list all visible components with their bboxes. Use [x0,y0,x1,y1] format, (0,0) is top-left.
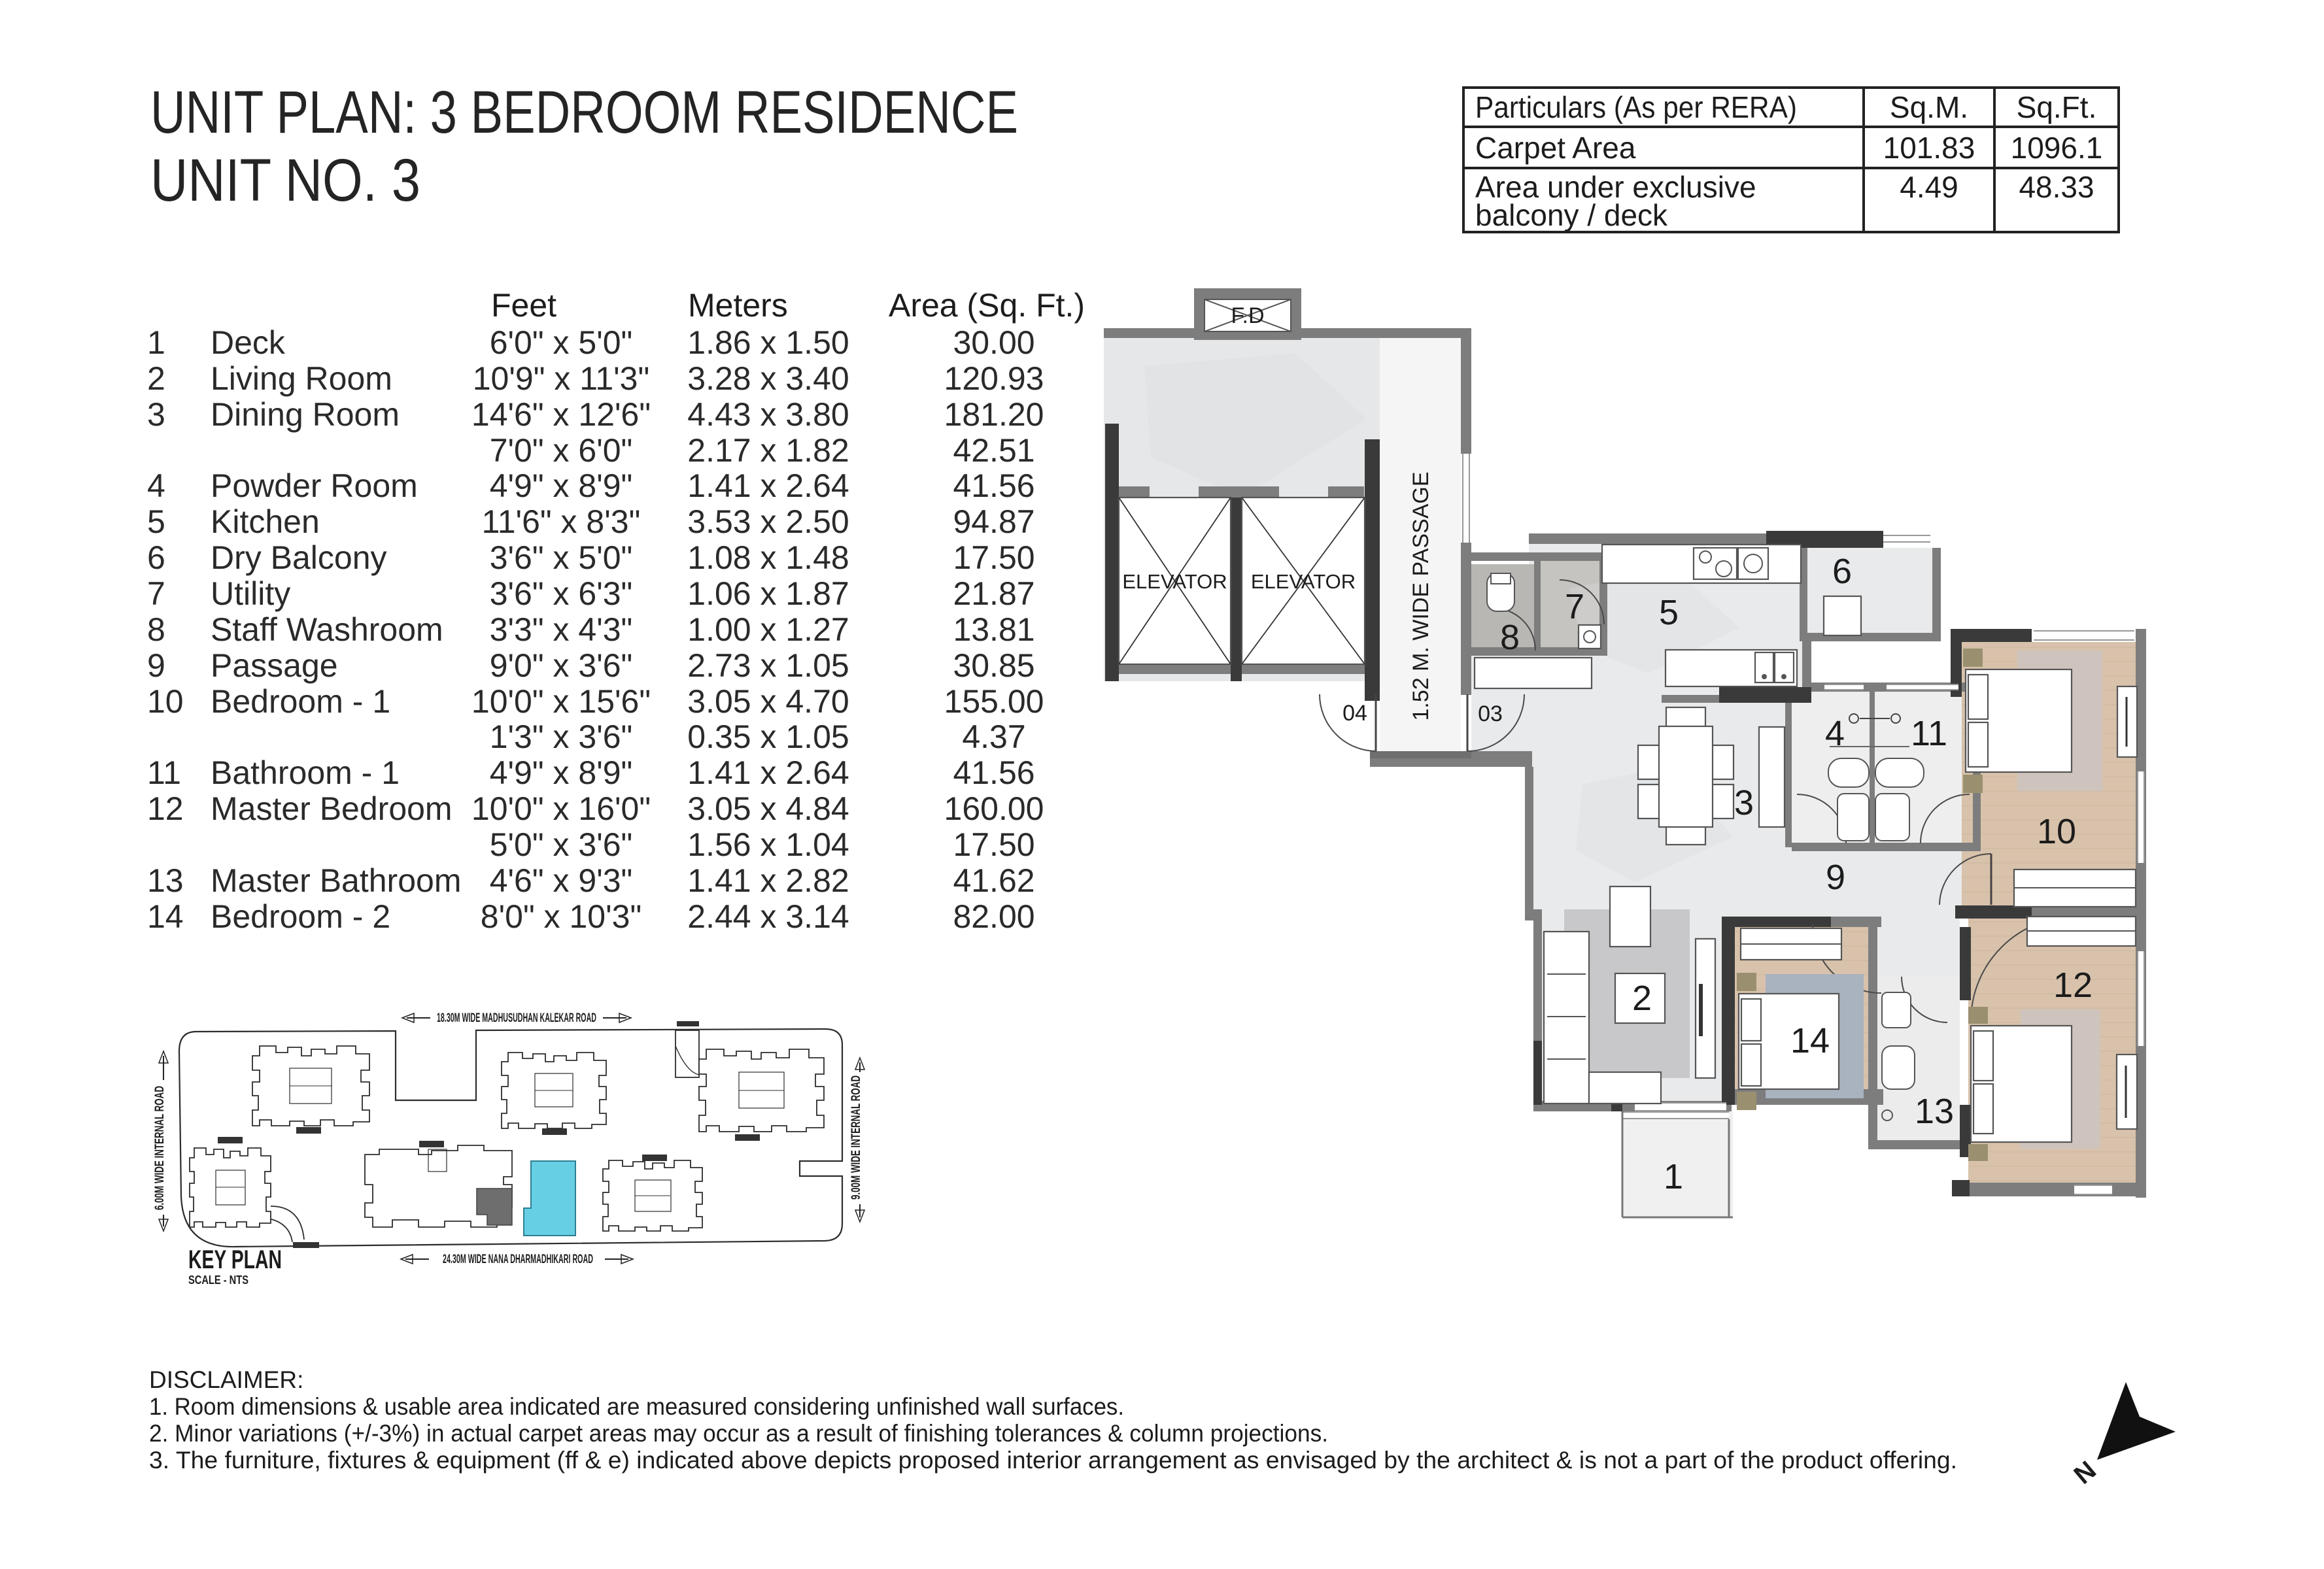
svg-text:1: 1 [147,324,165,361]
svg-text:11'6" x 8'3": 11'6" x 8'3" [482,503,641,540]
svg-text:Bedroom - 2: Bedroom - 2 [211,898,390,935]
svg-text:Particulars (As per RERA): Particulars (As per RERA) [1475,90,1797,124]
svg-text:120.93: 120.93 [944,360,1044,397]
svg-text:3.28 x 3.40: 3.28 x 3.40 [687,360,849,397]
svg-text:82.00: 82.00 [953,898,1034,935]
svg-text:UNIT NO. 3: UNIT NO. 3 [150,147,420,214]
svg-text:Utility: Utility [211,575,290,612]
svg-text:5: 5 [1659,593,1679,632]
svg-text:2: 2 [1632,979,1652,1018]
svg-text:21.87: 21.87 [953,575,1034,612]
svg-text:30.00: 30.00 [953,324,1034,361]
svg-text:Dry Balcony: Dry Balcony [211,539,387,576]
svg-text:1'3" x 3'6": 1'3" x 3'6" [490,718,633,755]
svg-text:Passage: Passage [211,647,338,684]
svg-text:41.56: 41.56 [953,754,1034,791]
svg-text:8: 8 [147,611,165,648]
svg-text:04: 04 [1342,701,1367,726]
svg-text:Living Room: Living Room [211,360,392,397]
svg-text:ELEVATOR: ELEVATOR [1251,570,1356,593]
svg-text:Area (Sq. Ft.): Area (Sq. Ft.) [889,287,1085,324]
svg-text:9'0" x 3'6": 9'0" x 3'6" [490,647,633,684]
svg-text:10: 10 [2037,812,2076,851]
svg-text:4: 4 [147,467,165,504]
svg-text:0.35 x 1.05: 0.35 x 1.05 [687,718,849,755]
svg-text:Kitchen: Kitchen [211,503,320,540]
svg-text:12: 12 [2053,966,2093,1005]
svg-text:Bathroom - 1: Bathroom - 1 [211,754,400,791]
svg-text:Bedroom - 1: Bedroom - 1 [211,683,390,720]
svg-text:3'3" x 4'3": 3'3" x 4'3" [490,611,633,648]
svg-text:2: 2 [147,360,165,397]
svg-text:3. The furniture, fixtures & e: 3. The furniture, fixtures & equipment (… [149,1447,1957,1474]
svg-text:Meters: Meters [688,287,788,324]
svg-text:4: 4 [1825,714,1845,753]
svg-text:13: 13 [1915,1092,1954,1131]
svg-text:Deck: Deck [211,324,286,361]
svg-text:balcony / deck: balcony / deck [1475,198,1668,232]
svg-text:155.00: 155.00 [944,683,1044,720]
svg-text:1.52 M. WIDE PASSAGE: 1.52 M. WIDE PASSAGE [1409,471,1433,720]
svg-text:4.49: 4.49 [1900,170,1958,204]
svg-text:94.87: 94.87 [953,503,1034,540]
svg-text:4.43 x 3.80: 4.43 x 3.80 [687,396,849,433]
svg-text:2.44 x 3.14: 2.44 x 3.14 [687,898,849,935]
svg-text:1.06 x 1.87: 1.06 x 1.87 [687,575,849,612]
svg-text:101.83: 101.83 [1883,131,1975,165]
svg-text:30.85: 30.85 [953,647,1034,684]
svg-text:13.81: 13.81 [953,611,1034,648]
svg-text:10'9" x 11'3": 10'9" x 11'3" [473,360,650,397]
svg-text:Feet: Feet [491,287,556,324]
svg-text:160.00: 160.00 [944,790,1044,827]
svg-text:Powder Room: Powder Room [211,467,418,504]
svg-text:3'6" x 6'3": 3'6" x 6'3" [490,575,633,612]
svg-text:7: 7 [1565,587,1584,626]
svg-text:2. Minor variations (+/-3%) in: 2. Minor variations (+/-3%) in actual ca… [149,1420,1328,1447]
svg-text:3.05 x 4.84: 3.05 x 4.84 [687,790,849,827]
svg-text:2.17 x 1.82: 2.17 x 1.82 [687,432,849,469]
svg-text:6: 6 [147,539,165,576]
svg-text:Staff Washroom: Staff Washroom [211,611,443,648]
svg-text:Carpet Area: Carpet Area [1475,131,1636,165]
svg-text:SCALE - NTS: SCALE - NTS [188,1274,248,1287]
svg-text:48.33: 48.33 [2019,170,2094,204]
svg-text:181.20: 181.20 [944,396,1044,433]
svg-text:ELEVATOR: ELEVATOR [1122,570,1227,593]
svg-text:11: 11 [147,754,181,791]
svg-text:9.00M WIDE INTERNAL ROAD: 9.00M WIDE INTERNAL ROAD [849,1075,863,1200]
svg-text:5'0" x 3'6": 5'0" x 3'6" [490,826,633,863]
svg-text:9: 9 [147,647,165,684]
svg-text:12: 12 [147,790,184,827]
svg-text:Master Bedroom: Master Bedroom [211,790,453,827]
svg-text:Dining Room: Dining Room [211,396,400,433]
svg-text:1: 1 [1664,1157,1683,1196]
svg-text:10'0" x 15'6": 10'0" x 15'6" [471,683,651,720]
svg-text:6: 6 [1832,552,1852,591]
svg-text:8: 8 [1500,618,1520,657]
svg-text:3'6" x 5'0": 3'6" x 5'0" [490,539,633,576]
svg-text:7: 7 [147,575,165,612]
svg-text:1.41 x 2.64: 1.41 x 2.64 [687,467,849,504]
svg-text:1.41 x 2.82: 1.41 x 2.82 [687,862,849,899]
svg-text:4.37: 4.37 [962,718,1025,755]
svg-text:F.D: F.D [1231,303,1265,328]
svg-text:18.30M WIDE MADHUSUDHAN KALEKA: 18.30M WIDE MADHUSUDHAN KALEKAR ROAD [437,1011,596,1025]
svg-text:03: 03 [1478,701,1503,726]
svg-text:7'0" x 6'0": 7'0" x 6'0" [490,432,633,469]
svg-text:6.00M WIDE INTERNAL ROAD: 6.00M WIDE INTERNAL ROAD [153,1086,167,1210]
svg-text:4'6" x 9'3": 4'6" x 9'3" [490,862,633,899]
svg-text:2.73 x 1.05: 2.73 x 1.05 [687,647,849,684]
svg-text:41.56: 41.56 [953,467,1034,504]
svg-text:Sq.Ft.: Sq.Ft. [2017,90,2097,124]
svg-text:1096.1: 1096.1 [2011,131,2103,165]
svg-text:Master Bathroom: Master Bathroom [211,862,461,899]
svg-text:14'6" x 12'6": 14'6" x 12'6" [471,396,651,433]
svg-text:6'0" x 5'0": 6'0" x 5'0" [490,324,633,361]
svg-text:14: 14 [147,898,184,935]
svg-text:Sq.M.: Sq.M. [1890,90,1968,124]
svg-text:17.50: 17.50 [953,539,1034,576]
svg-text:4'9" x 8'9": 4'9" x 8'9" [490,467,633,504]
svg-text:8'0" x 10'3": 8'0" x 10'3" [481,898,641,935]
svg-text:3.05 x 4.70: 3.05 x 4.70 [687,683,849,720]
svg-text:17.50: 17.50 [953,826,1034,863]
svg-text:1.41 x 2.64: 1.41 x 2.64 [687,754,849,791]
svg-text:42.51: 42.51 [953,432,1034,469]
svg-text:3: 3 [147,396,165,433]
svg-text:DISCLAIMER:: DISCLAIMER: [149,1366,303,1393]
svg-text:1.00 x 1.27: 1.00 x 1.27 [687,611,849,648]
svg-text:4'9" x 8'9": 4'9" x 8'9" [490,754,633,791]
svg-text:5: 5 [147,503,165,540]
svg-text:1.86 x 1.50: 1.86 x 1.50 [687,324,849,361]
svg-text:KEY PLAN: KEY PLAN [188,1245,282,1274]
svg-text:3.53 x 2.50: 3.53 x 2.50 [687,503,849,540]
svg-text:41.62: 41.62 [953,862,1034,899]
svg-text:UNIT PLAN: 3 BEDROOM RESIDENCE: UNIT PLAN: 3 BEDROOM RESIDENCE [150,79,1018,146]
svg-text:13: 13 [147,862,184,899]
svg-text:3: 3 [1734,783,1754,822]
svg-text:10: 10 [147,683,184,720]
svg-text:9: 9 [1826,858,1845,897]
svg-text:1.08 x 1.48: 1.08 x 1.48 [687,539,849,576]
svg-text:24.30M WIDE NANA DHARMADHIKARI: 24.30M WIDE NANA DHARMADHIKARI ROAD [443,1253,593,1266]
svg-text:10'0" x 16'0": 10'0" x 16'0" [471,790,651,827]
svg-text:1. Room dimensions & usable ar: 1. Room dimensions & usable area indicat… [149,1393,1124,1420]
svg-text:1.56 x 1.04: 1.56 x 1.04 [687,826,849,863]
svg-text:11: 11 [1911,714,1947,753]
svg-text:14: 14 [1790,1021,1830,1060]
